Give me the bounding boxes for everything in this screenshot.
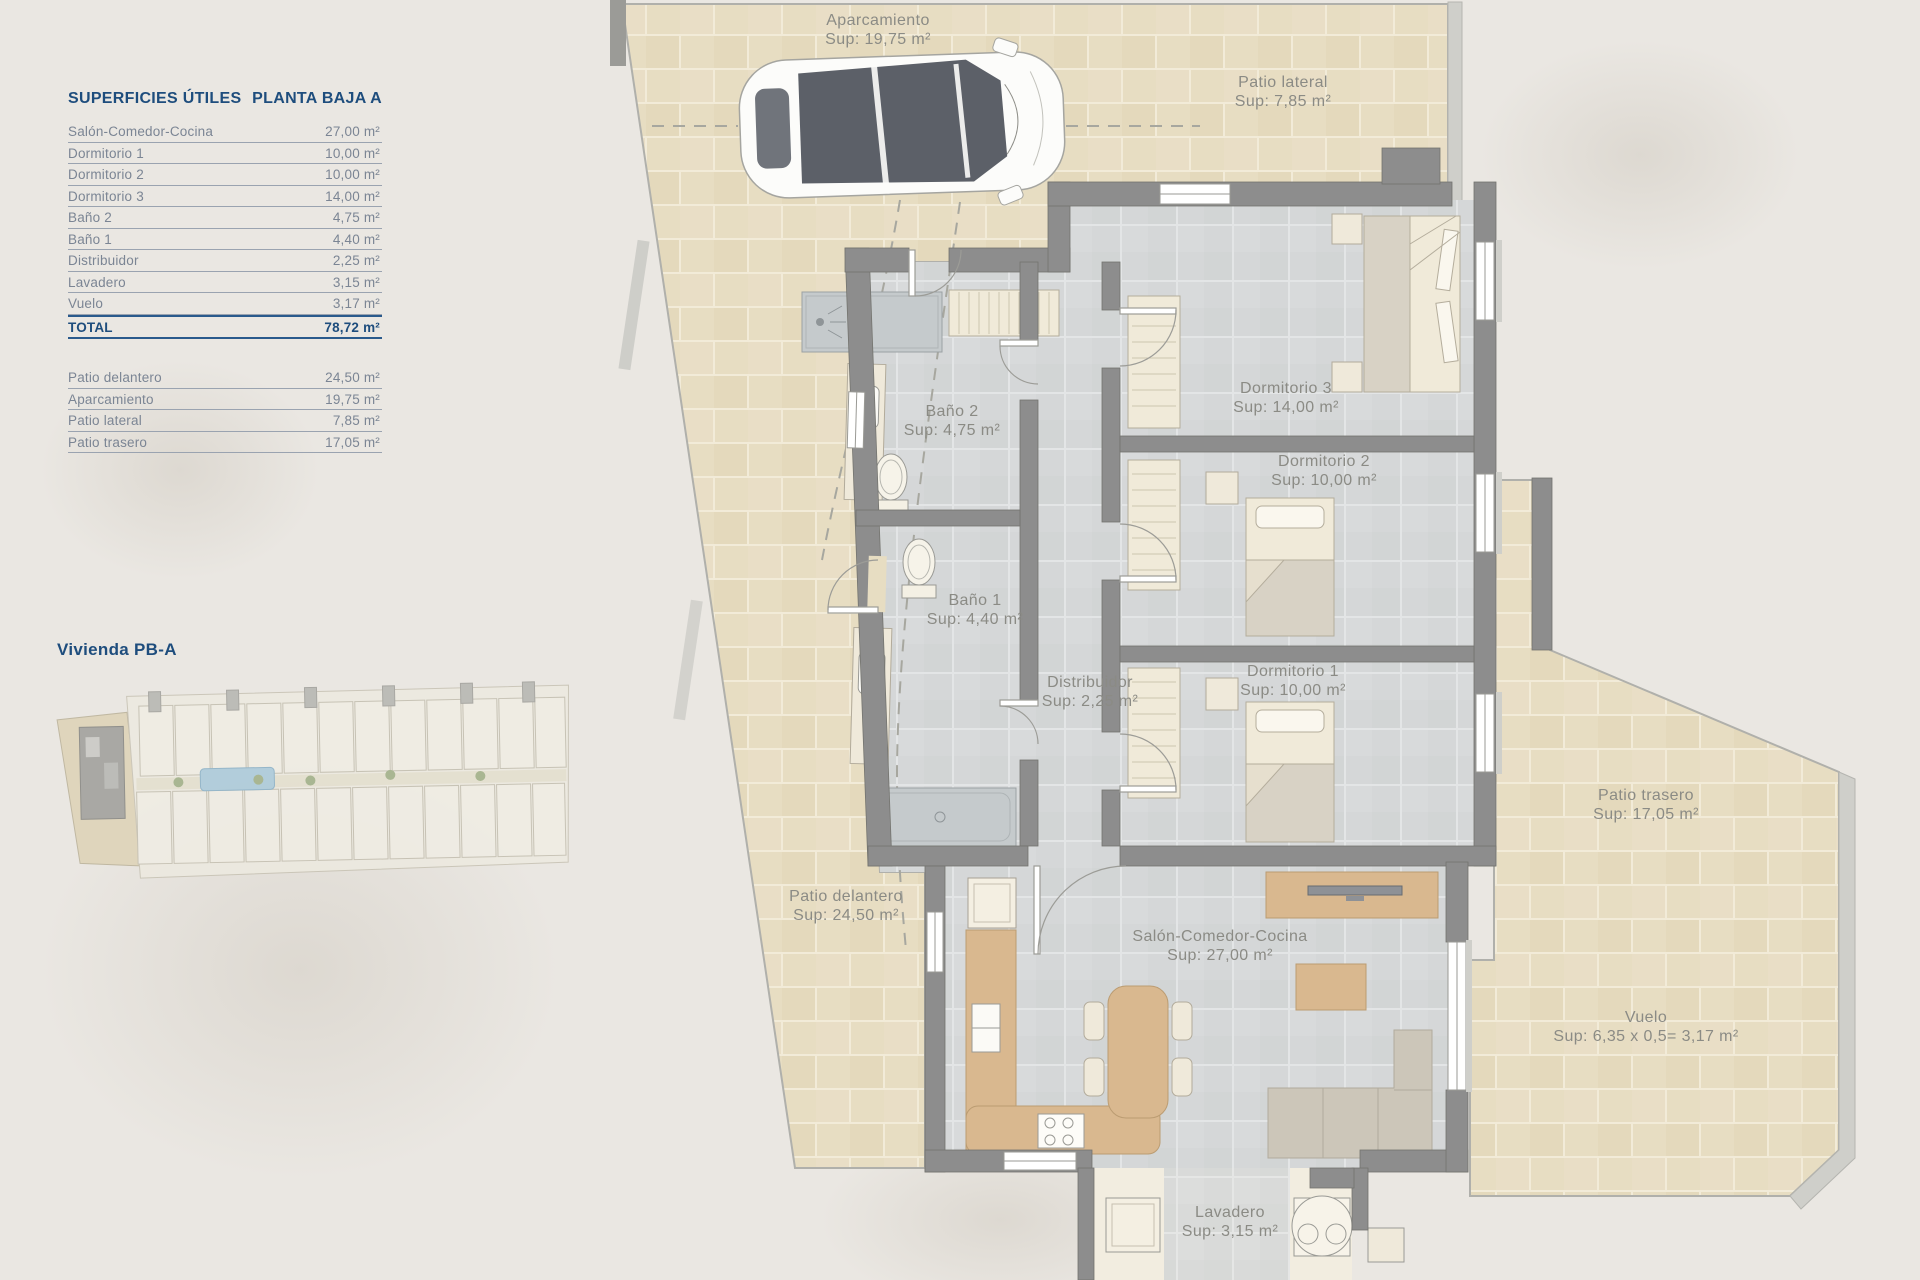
window [847, 392, 865, 448]
wardrobe-icon [1128, 460, 1180, 590]
table-row: Patio delantero24,50 m² [68, 367, 382, 389]
table-total-row: TOTAL 78,72 m² [68, 315, 382, 340]
table-row: Aparcamiento19,75 m² [68, 389, 382, 411]
table-row: Distribuidor2,25 m² [68, 250, 382, 272]
table-row: Patio trasero17,05 m² [68, 432, 382, 454]
window [1004, 1152, 1076, 1170]
wardrobe-icon [1128, 668, 1180, 798]
outdoor-areas-rows: Patio delantero24,50 m²Aparcamiento19,75… [68, 367, 382, 453]
hob-icon [1038, 1114, 1084, 1148]
window [927, 912, 943, 972]
site-plan-thumbnail [57, 681, 573, 880]
exterior-unit-icon [1368, 1228, 1404, 1262]
toilet-icon [902, 539, 936, 598]
site-plan-title: Vivienda PB-A [57, 640, 177, 660]
tv-icon [1308, 886, 1402, 895]
window [1476, 472, 1502, 554]
table-row: Dormitorio 110,00 m² [68, 143, 382, 165]
wardrobe-icon [1128, 296, 1180, 428]
stairs-icon [949, 290, 1059, 336]
pool-icon [200, 767, 274, 791]
total-label: TOTAL [68, 320, 113, 336]
gate-opening [867, 556, 887, 612]
table-row: Lavadero3,15 m² [68, 272, 382, 294]
window [1160, 184, 1230, 204]
plan-variant-title: PLANTA BAJA A [252, 90, 382, 108]
table-row: Dormitorio 314,00 m² [68, 186, 382, 208]
floor-plan-page: AparcamientoSup: 19,75 m²Patio lateralSu… [0, 0, 1920, 1280]
table-row: Dormitorio 210,00 m² [68, 164, 382, 186]
table-row: Salón-Comedor-Cocina27,00 m² [68, 121, 382, 143]
patio-fence-wall [1532, 478, 1552, 650]
car-icon [737, 35, 1067, 216]
tv-unit-icon [1266, 872, 1438, 918]
window [1476, 692, 1502, 774]
highlighted-unit [79, 726, 125, 819]
coffee-table-icon [1296, 964, 1366, 1010]
table-row: Vuelo3,17 m² [68, 293, 382, 315]
appliance-icon [1106, 1198, 1160, 1252]
window [1448, 940, 1472, 1092]
table-header: SUPERFICIES ÚTILES PLANTA BAJA A [68, 90, 382, 108]
toilet-icon [874, 454, 908, 513]
areas-rows: Salón-Comedor-Cocina27,00 m²Dormitorio 1… [68, 121, 382, 315]
table-row: Baño 24,75 m² [68, 207, 382, 229]
table-row: Patio lateral7,85 m² [68, 410, 382, 432]
areas-table: SUPERFICIES ÚTILES PLANTA BAJA A Salón-C… [68, 90, 382, 453]
total-value: 78,72 m² [324, 320, 380, 336]
table-title: SUPERFICIES ÚTILES [68, 90, 241, 108]
window [1476, 240, 1502, 322]
table-row: Baño 14,40 m² [68, 229, 382, 251]
washer-icon [1292, 1196, 1352, 1256]
